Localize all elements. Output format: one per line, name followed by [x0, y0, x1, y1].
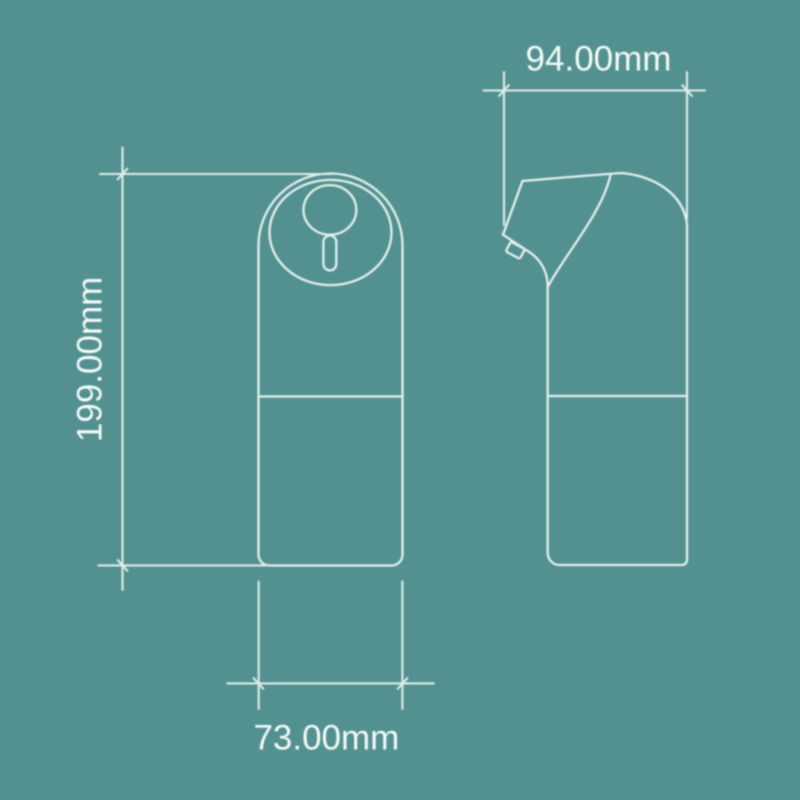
- svg-text:199.00mm: 199.00mm: [71, 277, 110, 442]
- svg-text:73.00mm: 73.00mm: [253, 719, 399, 758]
- svg-text:94.00mm: 94.00mm: [526, 40, 672, 79]
